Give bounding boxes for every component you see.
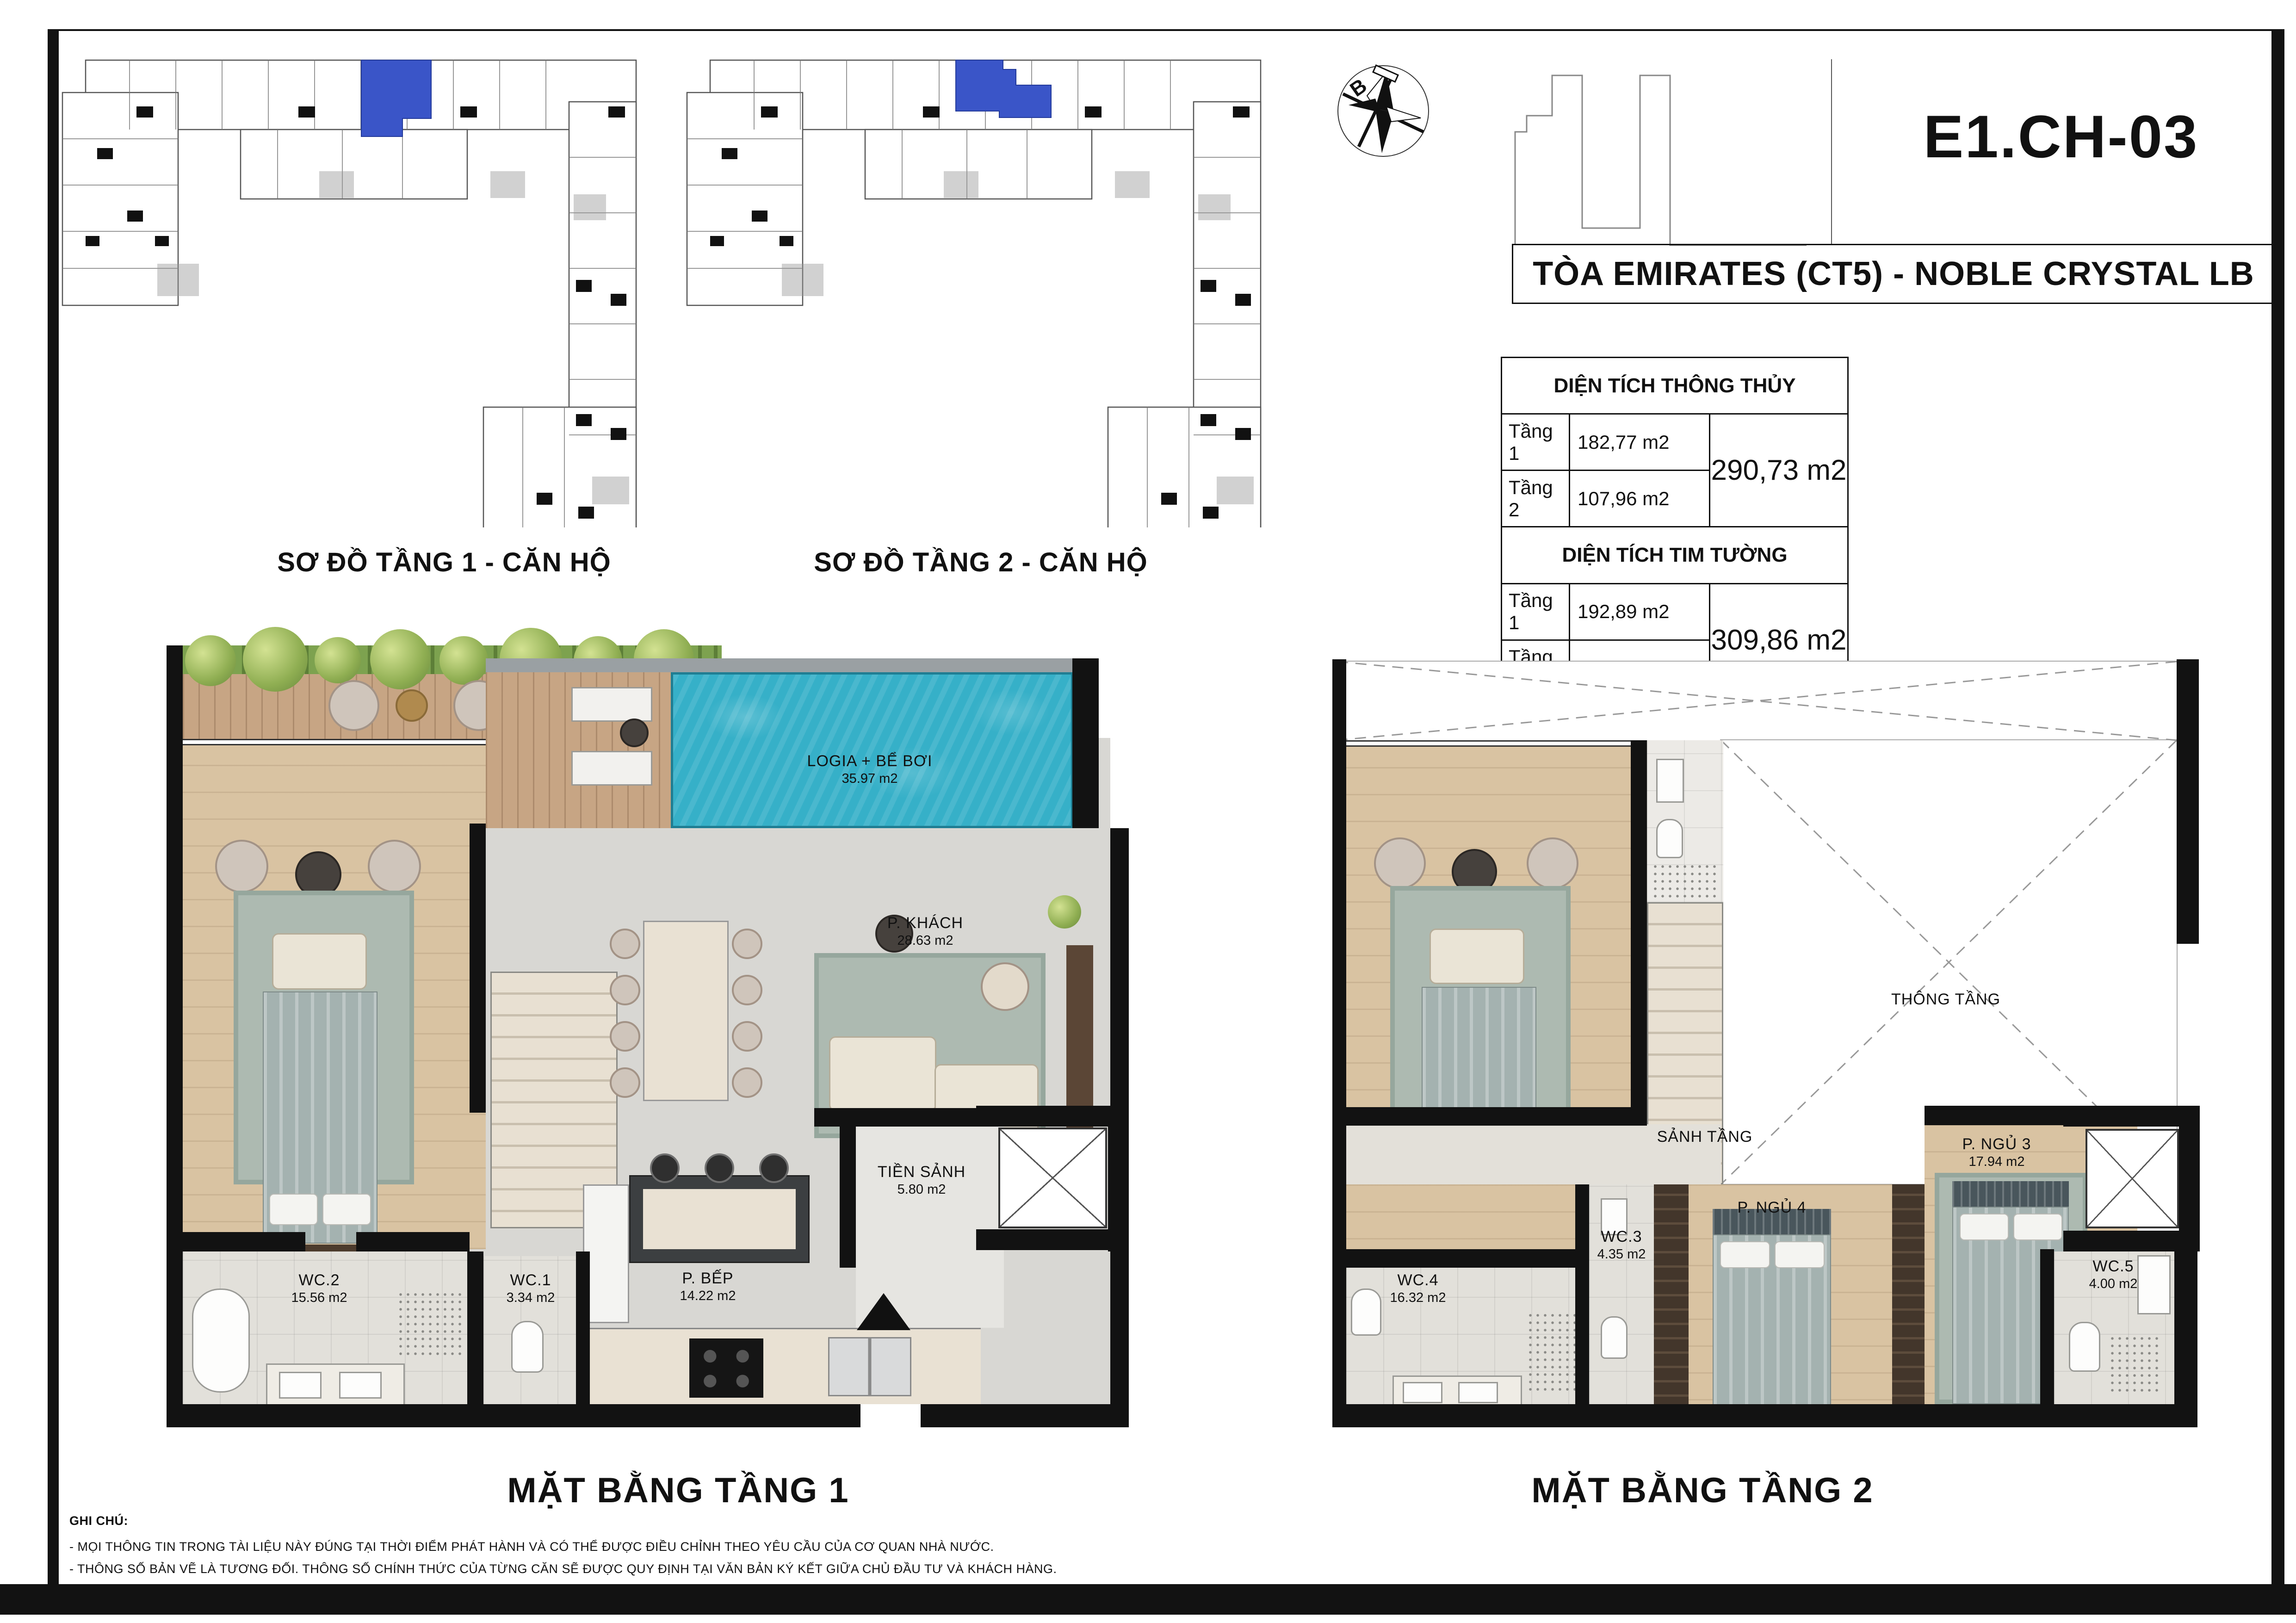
floor2-title: MẶT BẰNG TẦNG 2 xyxy=(1531,1470,1873,1511)
notes-line-2: - THÔNG SỐ BẢN VẼ LÀ TƯƠNG ĐỐI. THÔNG SỐ… xyxy=(69,1562,1057,1576)
dining-chair xyxy=(732,975,762,1005)
site-plan-floor2-diagram xyxy=(685,37,1346,527)
table-cell: 192,89 m2 xyxy=(1570,584,1709,639)
notes-line-1: - MỌI THÔNG TIN TRONG TÀI LIỆU NÀY ĐÚNG … xyxy=(69,1540,994,1554)
bedroom-chair xyxy=(1527,837,1578,889)
room-label-bed4: P. NGỦ 4 xyxy=(1737,1198,1806,1217)
table-cell: 107,96 m2 xyxy=(1570,471,1709,526)
frame-left xyxy=(48,29,59,1584)
building-name: TÒA EMIRATES (CT5) - NOBLE CRYSTAL LB xyxy=(1533,255,2254,293)
dining-chair xyxy=(610,975,640,1005)
site-plan-floor1-diagram xyxy=(60,37,722,527)
plant xyxy=(1048,895,1081,929)
bathtub xyxy=(192,1288,250,1393)
table-cell: Tầng 2 xyxy=(1502,471,1569,526)
floor1-title: MẶT BẰNG TẦNG 1 xyxy=(507,1470,849,1511)
room-label-foyer: TIỀN SẢNH 5.80 m2 xyxy=(878,1163,965,1198)
notes-heading: GHI CHÚ: xyxy=(69,1514,128,1528)
table-cell: 182,77 m2 xyxy=(1570,415,1709,470)
shower-area xyxy=(1652,863,1719,898)
room-label-wc4: WC.4 16.32 m2 xyxy=(1390,1271,1446,1307)
terrace-chair xyxy=(328,680,379,731)
building-silhouette xyxy=(1513,58,1809,248)
title-block-divider xyxy=(1831,59,1832,244)
bedroom-sofa xyxy=(272,933,367,990)
frame-bottom xyxy=(0,1584,2296,1615)
bedroom-bed xyxy=(1422,987,1536,1121)
kitchen-counter xyxy=(583,1328,981,1406)
dining-table xyxy=(643,921,729,1101)
toilet xyxy=(511,1321,544,1373)
wardrobe xyxy=(1654,1184,1689,1409)
room-label-living: P. KHÁCH 28.63 m2 xyxy=(887,914,963,949)
dining-chair xyxy=(732,1021,762,1052)
bar-stool xyxy=(650,1153,680,1183)
dining-chair xyxy=(610,929,640,959)
room-label-kitchen: P. BẾP 14.22 m2 xyxy=(680,1269,736,1305)
bar-stool xyxy=(759,1153,789,1183)
bedroom-sofa xyxy=(1430,929,1524,984)
table-cell: Tầng 1 xyxy=(1502,584,1569,639)
table-cell: Tầng 1 xyxy=(1502,415,1569,470)
toilet xyxy=(1601,1316,1628,1359)
pool xyxy=(671,672,1073,828)
building-name-box: TÒA EMIRATES (CT5) - NOBLE CRYSTAL LB xyxy=(1512,244,2275,304)
area-table-header-1: DIỆN TÍCH THÔNG THỦY xyxy=(1502,358,1847,413)
toilet xyxy=(1351,1288,1381,1336)
bedroom-chair xyxy=(215,840,268,893)
tall-cabinets xyxy=(583,1184,629,1323)
bedroom-chair xyxy=(368,840,421,893)
room-label-wc5: WC.5 4.00 m2 xyxy=(2089,1257,2138,1293)
living-sofa xyxy=(829,1036,936,1111)
bedroom-chair xyxy=(1374,837,1426,889)
site-plan2-caption: SƠ ĐỒ TẦNG 2 - CĂN HỘ xyxy=(814,547,1147,578)
room-label-wc3: WC.3 4.35 m2 xyxy=(1597,1227,1646,1263)
dining-chair xyxy=(610,1067,640,1098)
bar-stool xyxy=(705,1153,734,1183)
shower-area xyxy=(397,1291,462,1359)
area-table-header-2: DIỆN TÍCH TIM TƯỜNG xyxy=(1502,527,1847,582)
glass-wall xyxy=(1346,740,1647,747)
toilet xyxy=(2069,1322,2100,1372)
cooktop xyxy=(689,1338,763,1398)
floor2-plan: THÔNG TẦNG SẢNH TẦNG WC.4 16.32 m xyxy=(1332,645,2200,1430)
dining-chair xyxy=(732,929,762,959)
unit-code: E1.CH-03 xyxy=(1844,102,2278,171)
shower-area xyxy=(2109,1335,2160,1394)
small-tub xyxy=(2137,1255,2171,1314)
dining-chair xyxy=(610,1021,640,1052)
compass-icon: B xyxy=(1335,62,1432,160)
toilet xyxy=(1656,819,1683,858)
living-pouf xyxy=(981,962,1029,1011)
site-plan1-caption: SƠ ĐỒ TẦNG 1 - CĂN HỘ xyxy=(277,547,611,578)
pool-lounger xyxy=(571,751,652,786)
elevator xyxy=(2086,1129,2179,1228)
pool-lounger xyxy=(571,687,652,722)
drawing-sheet: B E1.CH-03 TÒA EMIRATES (CT5) - NOBLE CR… xyxy=(0,0,2296,1623)
dining-chair xyxy=(732,1067,762,1098)
kitchen-sink xyxy=(828,1337,911,1396)
entrance-arrow-icon xyxy=(857,1293,910,1330)
frame-top xyxy=(48,29,2284,31)
room-label-wc1: WC.1 3.34 m2 xyxy=(507,1271,555,1307)
total-area-thong-thuy: 290,73 m2 xyxy=(1710,415,1847,526)
room-label-hall: SẢNH TẦNG xyxy=(1657,1127,1753,1146)
room-label-pool: LOGIA + BỂ BƠI 35.97 m2 xyxy=(807,752,933,787)
terrace-table xyxy=(396,689,428,722)
elevator xyxy=(998,1127,1107,1228)
sink xyxy=(1656,759,1684,803)
pool-side-table xyxy=(620,719,649,747)
room-label-bed3: P. NGỦ 3 17.94 m2 xyxy=(1962,1135,2031,1171)
floor1-plan: LOGIA + BỂ BƠI 35.97 m2 P. KHÁC xyxy=(167,645,1147,1430)
room-label-wc2: WC.2 15.56 m2 xyxy=(291,1271,347,1307)
room-label-void: THÔNG TẦNG xyxy=(1891,990,2000,1009)
wardrobe xyxy=(1892,1184,1925,1409)
